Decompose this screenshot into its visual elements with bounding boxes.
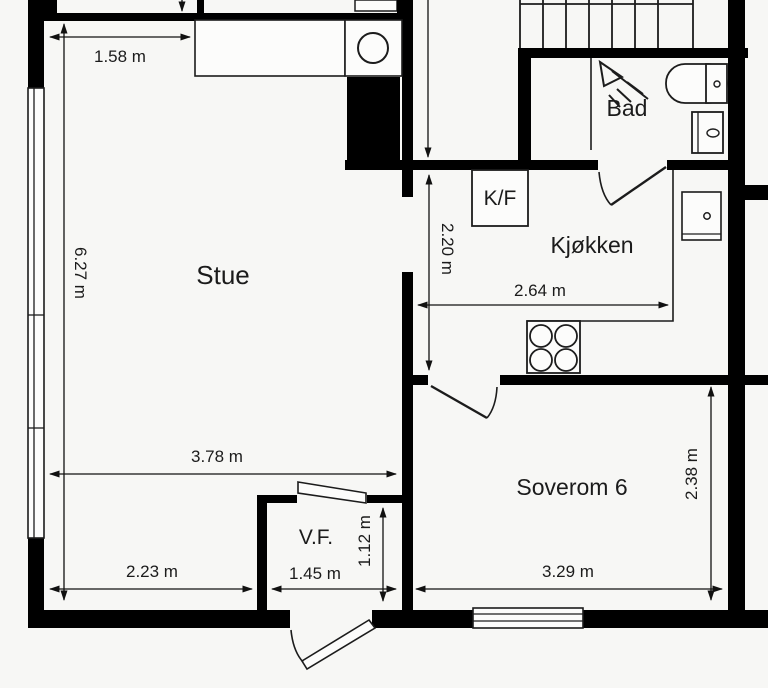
dim-label-corridor-height: 2.20 m (438, 223, 457, 275)
wall-top-right-stub (397, 0, 413, 13)
dim-label-vf-height: 1.12 m (355, 515, 374, 567)
wall-vf-top-right (367, 495, 413, 503)
wall-mid-left-jamb (402, 375, 428, 385)
wall-vf-top-left (257, 495, 297, 503)
wall-bottom-right (583, 610, 768, 628)
sink-unit-top (345, 20, 402, 76)
wall-left-upper (28, 0, 44, 88)
wall-vf-left (257, 495, 267, 610)
wall-top-stub (197, 0, 204, 13)
wall-kitchen-top-left (345, 160, 598, 170)
dim-label-stue-bottom-width: 2.23 m (126, 562, 178, 581)
door-entrance (291, 620, 375, 669)
room-label-stue: Stue (196, 260, 250, 290)
wall-below-stairs (518, 48, 748, 58)
dim-label-soverom-width: 3.29 m (542, 562, 594, 581)
dim-label-kjokken-width: 2.64 m (514, 281, 566, 300)
fixtures: K/F (195, 20, 727, 373)
staircase (520, 0, 693, 48)
wall-bottom-center (372, 610, 473, 628)
fridge-freezer-label: K/F (484, 187, 517, 210)
room-label-bad: Bad (607, 95, 648, 121)
kitchen-sink-icon (682, 192, 721, 240)
door-soverom (431, 386, 497, 418)
cutoff-box-above-top-wall (355, 0, 397, 11)
wall-center-vertical-lower (402, 272, 413, 627)
dim-label-vf-width: 1.45 m (289, 564, 341, 583)
dim-label-stue-top-width: 1.58 m (94, 47, 146, 66)
room-label-kjokken: Kjøkken (550, 232, 633, 258)
room-label-vf: V.F. (299, 526, 333, 549)
door-vf (298, 482, 366, 503)
bathroom-sink-icon (692, 112, 723, 153)
dim-label-soverom-height: 2.38 m (682, 448, 701, 500)
toilet-icon (666, 64, 727, 103)
window-left (28, 88, 44, 538)
wall-right (728, 0, 745, 628)
dim-label-stue-width: 3.78 m (191, 447, 243, 466)
dim-label-stue-height: 6.27 m (71, 247, 90, 299)
floor-plan-canvas: K/F (0, 0, 768, 688)
floor-plan: K/F (0, 0, 768, 688)
window-soverom (473, 608, 583, 628)
wall-bad-left (518, 48, 531, 168)
wall-right-stub (745, 185, 768, 200)
room-label-soverom6: Soverom 6 (516, 474, 627, 500)
wall-bottom-left (28, 610, 290, 628)
wall-mid-kitchen-soverom (500, 375, 768, 385)
stove-icon (527, 321, 580, 373)
door-bad (599, 167, 666, 205)
fridge-freezer: K/F (472, 170, 528, 226)
chimney-block (347, 77, 400, 168)
counter-stue-top (195, 20, 345, 76)
walls (28, 0, 768, 628)
